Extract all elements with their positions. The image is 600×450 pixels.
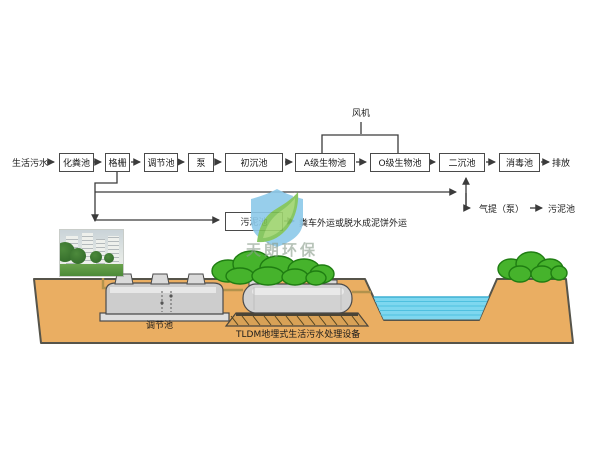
flow-box-primary-settling: 初沉池 (225, 153, 283, 172)
tree (104, 253, 114, 263)
sludge-tank-box: 污泥池 (225, 212, 283, 231)
flow-box-secondary-settling: 二沉池 (439, 153, 485, 172)
bushes-left (212, 251, 334, 285)
airlift-pump-label: 气提（泵） (479, 202, 524, 215)
airlift-target-label: 污泥池 (548, 202, 575, 215)
lawn (60, 264, 123, 276)
source-label: 生活污水 (12, 156, 48, 169)
tank2-label: TLDM地埋式生活污水处理设备 (236, 327, 360, 340)
flow-box-a-bio-tank: A级生物池 (295, 153, 355, 172)
discharge-label: 排放 (552, 156, 570, 169)
flow-box-o-bio-tank: O级生物池 (370, 153, 430, 172)
blower-label: 风机 (352, 106, 370, 119)
wastewater-process-diagram: 生活污水 化粪池 格栅 调节池 泵 初沉池 A级生物池 O级生物池 二沉池 消毒… (0, 0, 600, 450)
residential-buildings-photo (60, 230, 123, 276)
tank2-tldm-equipment (226, 280, 368, 326)
flow-box-screen: 格栅 (105, 153, 130, 172)
sludge-disposal-label: 粪车外运或脱水成泥饼外运 (299, 216, 407, 229)
flow-box-pump: 泵 (188, 153, 214, 172)
tank1-label: 调节池 (146, 318, 173, 331)
tree (90, 251, 102, 263)
pond-water (374, 297, 490, 320)
tree (70, 248, 86, 264)
flow-box-septic-tank: 化粪池 (59, 153, 94, 172)
bushes-right (498, 252, 567, 282)
flow-box-disinfection: 消毒池 (499, 153, 540, 172)
flow-box-regulating-tank: 调节池 (144, 153, 178, 172)
